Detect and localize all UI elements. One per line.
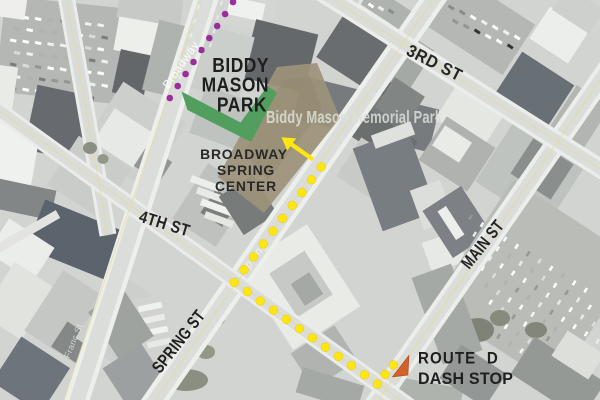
svg-text:Biddy Mason Memorial Park: Biddy Mason Memorial Park xyxy=(266,108,442,127)
svg-text:CENTER: CENTER xyxy=(215,178,277,194)
svg-text:ROUTE D: ROUTE D xyxy=(418,350,499,368)
svg-text:SPRING: SPRING xyxy=(217,162,275,178)
svg-text:DASH STOP: DASH STOP xyxy=(418,370,513,388)
svg-text:BROADWAY: BROADWAY xyxy=(200,146,288,162)
svg-text:PARK: PARK xyxy=(217,94,267,117)
